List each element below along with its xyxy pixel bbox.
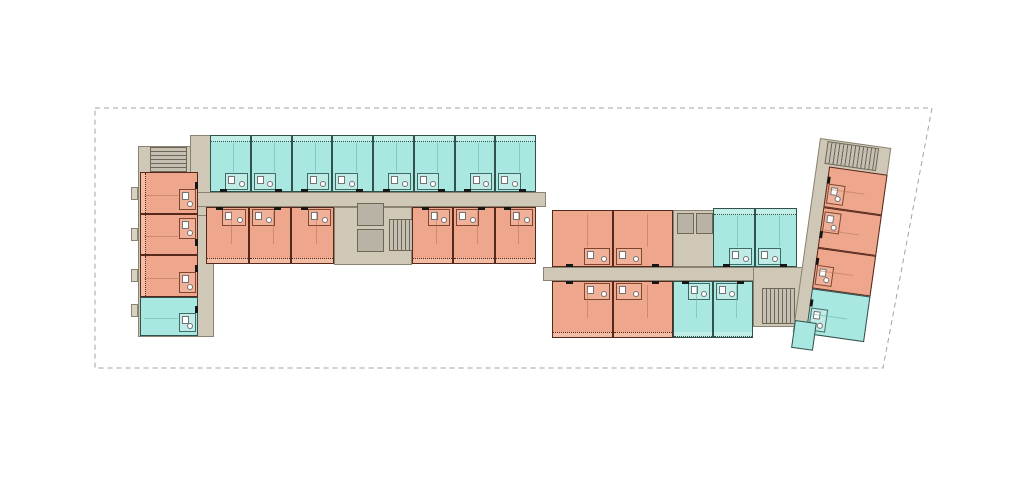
balcony: [413, 258, 452, 263]
west-south-units-right: [412, 207, 536, 264]
bathroom-pod: [826, 183, 846, 206]
bathroom-pod: [225, 173, 247, 190]
bathroom-pod: [335, 173, 357, 190]
balcony: [456, 136, 495, 142]
entry-door-mark: [827, 176, 831, 183]
unit-salmon: [206, 207, 249, 264]
unit-salmon: [412, 207, 453, 264]
west-elevator-1: [357, 203, 384, 226]
west-north-units: [210, 135, 536, 192]
bathroom-pod: [716, 283, 738, 300]
entry-door-mark: [652, 281, 659, 284]
unit-salmon: [552, 210, 613, 267]
unit-cyan: [495, 135, 536, 192]
bathroom-pod: [688, 283, 710, 300]
unit-cyan: [292, 135, 333, 192]
balcony: [141, 256, 146, 296]
entry-door-mark: [195, 265, 198, 272]
bathroom-pod: [616, 248, 642, 265]
entry-door-mark: [566, 264, 573, 267]
interior-wall: [779, 216, 780, 247]
interior-wall: [647, 285, 648, 318]
bathroom-pod: [428, 209, 451, 226]
east-salmon-bottom: [552, 281, 673, 338]
unit-salmon: [613, 210, 674, 267]
west-wing-stair: [150, 147, 187, 173]
unit-salmon: [495, 207, 536, 264]
unit-cyan: [755, 208, 797, 267]
balcony: [141, 173, 146, 213]
interior-wall: [144, 278, 178, 279]
balcony: [141, 215, 146, 255]
balcony: [674, 332, 712, 337]
entry-door-mark: [737, 281, 744, 284]
unit-cyan: [251, 135, 292, 192]
interior-wall: [478, 143, 479, 172]
balcony: [333, 136, 372, 142]
balcony: [714, 332, 752, 337]
entry-door-mark: [566, 281, 573, 284]
unit-cyan: [806, 288, 871, 342]
bathroom-pod: [815, 264, 835, 287]
balcony-stub: [131, 304, 138, 317]
bathroom-pod: [388, 173, 410, 190]
interior-wall: [316, 211, 317, 244]
bathroom-pod: [179, 189, 196, 210]
balcony: [553, 332, 612, 337]
interior-wall: [144, 318, 178, 319]
interior-wall: [274, 143, 275, 172]
interior-wall: [233, 143, 234, 172]
interior-wall: [736, 285, 737, 318]
interior-wall: [144, 195, 178, 196]
entry-door-mark: [356, 189, 363, 192]
west-wing-units: [140, 172, 198, 297]
site-plan: [0, 0, 1024, 478]
interior-wall: [737, 216, 738, 247]
interior-wall: [436, 211, 437, 244]
bathroom-pod: [179, 218, 196, 239]
balcony: [207, 258, 248, 263]
unit-cyan: [210, 135, 251, 192]
unit-salmon: [140, 255, 198, 297]
bathroom-pod: [498, 173, 520, 190]
west-south-units-left: [206, 207, 334, 264]
balcony: [293, 136, 332, 142]
west-wing-cyan-unit: [140, 297, 198, 336]
entry-door-mark: [274, 207, 281, 210]
entry-door-mark: [301, 207, 308, 210]
east-cyan-top: [713, 208, 797, 267]
interior-wall: [696, 285, 697, 318]
entry-door-mark: [422, 207, 429, 210]
entry-door-mark: [438, 189, 445, 192]
unit-cyan: [140, 297, 198, 336]
interior-wall: [315, 143, 316, 172]
unit-salmon: [291, 207, 334, 264]
bathroom-pod: [252, 209, 275, 226]
entry-door-mark: [301, 189, 308, 192]
wing-cyan-unit: [806, 288, 871, 342]
interior-wall: [587, 214, 588, 247]
entry-door-mark: [723, 264, 730, 267]
balcony: [292, 258, 333, 263]
bathroom-pod: [456, 209, 479, 226]
interior-wall: [273, 211, 274, 244]
entry-door-mark: [275, 189, 282, 192]
balcony-stub: [131, 269, 138, 282]
interior-wall: [396, 143, 397, 172]
unit-cyan: [332, 135, 373, 192]
balcony: [250, 258, 291, 263]
bathroom-pod: [616, 283, 642, 300]
balcony: [211, 136, 250, 142]
entry-door-mark: [195, 306, 198, 313]
unit-salmon: [552, 281, 613, 338]
interior-wall: [144, 236, 178, 237]
bathroom-pod: [584, 248, 610, 265]
entry-door-mark: [383, 189, 390, 192]
entry-door-mark: [519, 189, 526, 192]
bathroom-pod: [254, 173, 276, 190]
unit-cyan: [713, 208, 755, 267]
unit-salmon: [249, 207, 292, 264]
unit-cyan: [373, 135, 414, 192]
unit-cyan: [713, 281, 753, 338]
wing-annex-cyan: [791, 320, 817, 351]
bathroom-pod: [307, 173, 329, 190]
west-elevator-2: [357, 229, 384, 252]
unit-salmon: [453, 207, 494, 264]
balcony-stub: [131, 228, 138, 241]
east-salmon-top: [552, 210, 673, 267]
bathroom-pod: [179, 313, 196, 333]
entry-door-mark: [216, 207, 223, 210]
interior-wall: [356, 143, 357, 172]
bathroom-pod: [417, 173, 439, 190]
bathroom-pod: [510, 209, 533, 226]
balcony: [614, 332, 673, 337]
interior-wall: [477, 211, 478, 244]
entry-door-mark: [478, 207, 485, 210]
interior-wall: [231, 211, 232, 244]
unit-salmon: [613, 281, 674, 338]
entry-door-mark: [682, 281, 689, 284]
interior-wall: [519, 143, 520, 172]
unit-cyan: [414, 135, 455, 192]
balcony: [496, 258, 535, 263]
entry-door-mark: [195, 182, 198, 189]
balcony: [714, 209, 754, 215]
entry-door-mark: [810, 299, 814, 306]
entry-door-mark: [195, 239, 198, 246]
balcony: [496, 136, 535, 142]
east-elevator-1: [677, 213, 694, 234]
entry-door-mark: [780, 264, 787, 267]
bathroom-pod: [308, 209, 331, 226]
east-elevator-2: [696, 213, 713, 234]
entry-door-mark: [819, 231, 823, 238]
bathroom-pod: [758, 248, 781, 265]
unit-salmon: [140, 172, 198, 214]
balcony: [756, 209, 796, 215]
interior-wall: [587, 285, 588, 318]
east-stair: [762, 288, 795, 324]
unit-salmon: [140, 214, 198, 256]
entry-door-mark: [220, 189, 227, 192]
entry-door-mark: [504, 207, 511, 210]
bathroom-pod: [729, 248, 752, 265]
unit-cyan: [455, 135, 496, 192]
balcony: [415, 136, 454, 142]
bathroom-pod: [179, 272, 196, 293]
bathroom-pod: [470, 173, 492, 190]
interior-wall: [647, 214, 648, 247]
interior-wall: [518, 211, 519, 244]
entry-door-mark: [815, 257, 819, 264]
west-corridor: [140, 192, 546, 207]
balcony: [454, 258, 493, 263]
balcony-stub: [131, 187, 138, 200]
entry-door-mark: [652, 264, 659, 267]
east-cyan-bottom: [673, 281, 753, 338]
interior-wall: [437, 143, 438, 172]
balcony: [374, 136, 413, 142]
bathroom-pod: [222, 209, 245, 226]
balcony: [252, 136, 291, 142]
entry-door-mark: [464, 189, 471, 192]
unit-cyan: [673, 281, 713, 338]
